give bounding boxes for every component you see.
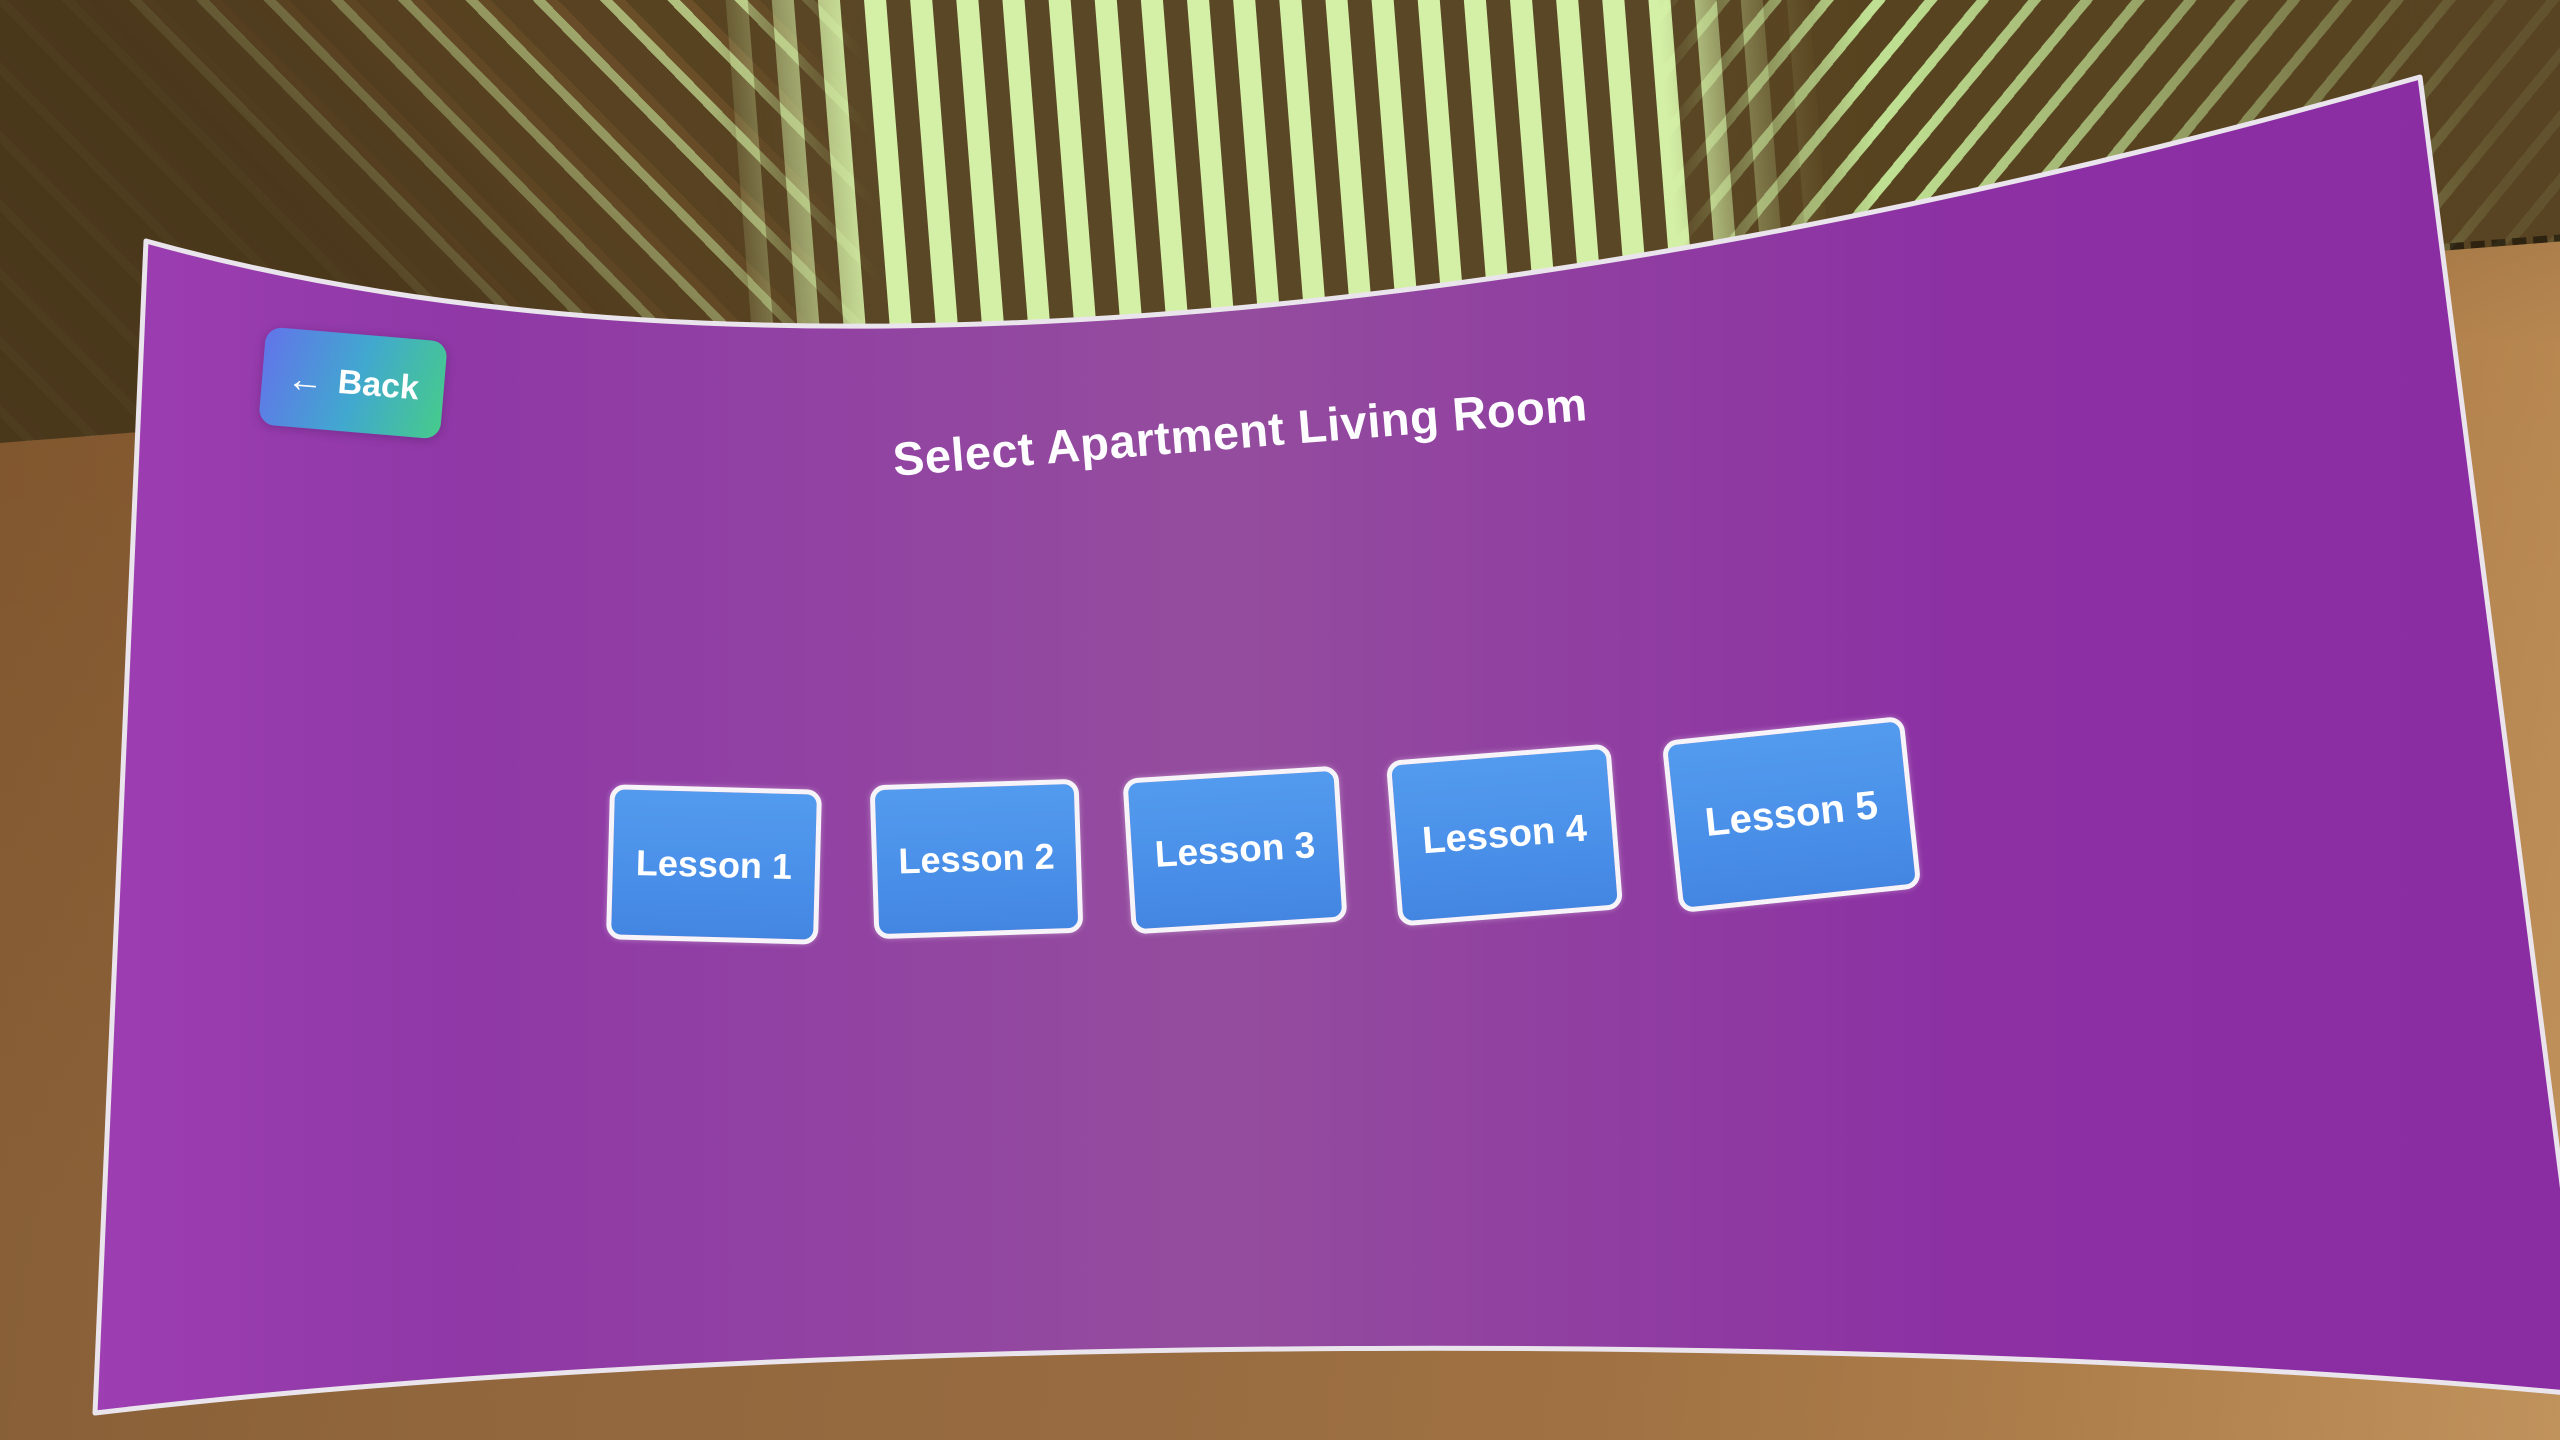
lesson-2-button[interactable]: Lesson 2 [870, 779, 1084, 939]
lesson-5-button[interactable]: Lesson 5 [1662, 716, 1922, 913]
back-button-label: Back [336, 362, 420, 408]
curved-menu-panel [0, 0, 2560, 1440]
lesson-3-label: Lesson 3 [1154, 824, 1317, 876]
lesson-1-label: Lesson 1 [635, 841, 792, 887]
vr-scene: ← Back Select Apartment Living Room Less… [0, 0, 2560, 1440]
left-arrow-icon: ← [286, 359, 326, 399]
panel-surface [95, 77, 2560, 1413]
back-button[interactable]: ← Back [258, 327, 448, 440]
lesson-1-button[interactable]: Lesson 1 [606, 784, 822, 944]
lesson-2-label: Lesson 2 [898, 836, 1055, 883]
lesson-3-button[interactable]: Lesson 3 [1122, 766, 1347, 935]
lesson-4-button[interactable]: Lesson 4 [1386, 743, 1623, 926]
lesson-5-label: Lesson 5 [1703, 783, 1880, 846]
lesson-4-label: Lesson 4 [1421, 807, 1589, 863]
